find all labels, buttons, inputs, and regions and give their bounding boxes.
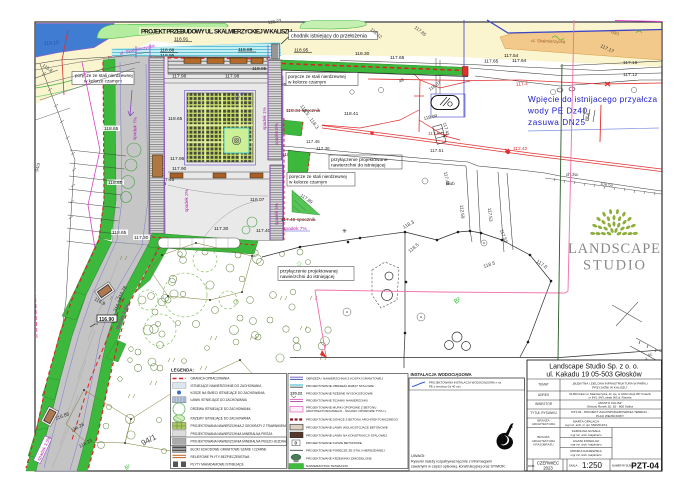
svg-text:DATA: DATA bbox=[528, 464, 535, 468]
svg-text:Rysunki należy rozpatrywać ł: Rysunki należy rozpatrywać łącznie z inf… bbox=[411, 460, 492, 464]
svg-text:PROJEKTOWANE RZĘDNE WYSOKOŚCIO: PROJEKTOWANE RZĘDNE WYSOKOŚCIOWE bbox=[306, 390, 373, 395]
svg-text:przyłączenie projektowane: przyłączenie projektowane bbox=[331, 157, 388, 163]
svg-text:spadek 6%: spadek 6% bbox=[274, 203, 279, 225]
svg-text:118.30: 118.30 bbox=[355, 51, 370, 57]
svg-text:GRANICA OPRACOWANIA: GRANICA OPRACOWANIA bbox=[191, 377, 231, 381]
svg-text:118.65: 118.65 bbox=[112, 230, 127, 236]
svg-text:ARCHITEKTURA: ARCHITEKTURA bbox=[532, 422, 555, 426]
svg-text:nawierzchni do istniejącej: nawierzchni do istniejącej bbox=[331, 163, 385, 169]
svg-text:PROJEKT PRZEBUDOWY UL. SKALMIE: PROJEKT PRZEBUDOWY UL. SKALMIERZYCKIEJ W… bbox=[141, 29, 293, 36]
svg-text:KOSZE NA ŚMIECI ISTNIEJĄCE DO: KOSZE NA ŚMIECI ISTNIEJĄCE DO ZACHOWANIA bbox=[191, 390, 266, 395]
svg-text:wody PE Dz40: wody PE Dz40 bbox=[527, 107, 587, 116]
svg-text:PRZYJAŹNI W KALISZU”: PRZYJAŹNI W KALISZU” bbox=[592, 385, 627, 390]
svg-text:spadek 1%: spadek 1% bbox=[262, 107, 267, 130]
svg-text:DRZEWA ISTNIEJĄCE DO ZACHOWANI: DRZEWA ISTNIEJĄCE DO ZACHOWANIA bbox=[191, 407, 252, 411]
svg-text:117.40: 117.40 bbox=[256, 228, 271, 234]
svg-text:PLAC WEJŚCIOWY: PLAC WEJŚCIOWY bbox=[596, 413, 624, 418]
svg-text:117.90: 117.90 bbox=[172, 166, 187, 172]
svg-text:117.96: 117.96 bbox=[170, 156, 185, 162]
svg-text:117.64: 117.64 bbox=[512, 58, 527, 64]
svg-text:BLOKI SCHODOWE GRANITOWE SZARE: BLOKI SCHODOWE GRANITOWE SZARE I CZARNE bbox=[191, 448, 267, 452]
svg-text:ŁAWKI ISTNIEJĄCE DO ZACHOWANIA: ŁAWKI ISTNIEJĄCE DO ZACHOWANIA bbox=[191, 398, 248, 402]
svg-text:ul.: ul. bbox=[648, 352, 653, 357]
svg-text:117.46: 117.46 bbox=[306, 139, 320, 144]
svg-text:PROJEKTOWANA NAWIERZCHNIA MINE: PROJEKTOWANA NAWIERZCHNIA MINERALNA PIES… bbox=[191, 440, 287, 444]
svg-text:LANDSCAPE: LANDSCAPE bbox=[568, 241, 660, 257]
svg-text:PROJEKTOWANA NAWIERZCHNIA Z GE: PROJEKTOWANA NAWIERZCHNIA Z GEOKRATY Z T… bbox=[191, 424, 287, 428]
svg-text:✳: ✳ bbox=[342, 228, 347, 235]
svg-text:mgr inż. arch. nr upr. MW/2012: mgr inż. arch. nr upr. MW/2012/12 bbox=[565, 423, 608, 427]
svg-text:INSTALACJA WODOCIĄGOWA: INSTALACJA WODOCIĄGOWA bbox=[411, 372, 472, 377]
svg-text:spadek 2%: spadek 2% bbox=[184, 189, 189, 212]
svg-text:118.95: 118.95 bbox=[252, 66, 267, 72]
svg-text:PROJEKTOWANE ŁAWKI WOLNOSTOJĄC: PROJEKTOWANE ŁAWKI WOLNOSTOJĄCE BETONOWE bbox=[306, 426, 388, 430]
svg-text:TYTUŁ RYSUNKU: TYTUŁ RYSUNKU bbox=[530, 411, 557, 415]
svg-text:1:250: 1:250 bbox=[582, 461, 603, 470]
svg-text:zawartymi w części opisowej, k: zawartymi w części opisowej, konstrukcyj… bbox=[411, 465, 506, 469]
svg-text:PROJEKTOWANE KOSZE BETONOWE: PROJEKTOWANE KOSZE BETONOWE bbox=[306, 441, 362, 445]
svg-text:2023: 2023 bbox=[543, 466, 553, 471]
svg-text:ARCHITEKTONICZNEGO - ŚCIANKI O: ARCHITEKTONICZNEGO - ŚCIANKI OPOROWE TYP… bbox=[306, 408, 387, 413]
svg-text:Główny Rynek 20, 62 - 800 Kali: Główny Rynek 20, 62 - 800 Kalisz bbox=[587, 405, 634, 409]
svg-text:PROJEKTOWANA NAWIERZCHNIA MINE: PROJEKTOWANA NAWIERZCHNIA MINERALNA PIES… bbox=[191, 432, 274, 436]
svg-text:PROJEKTOWANE PORĘCZE ZE STALI: PROJEKTOWANE PORĘCZE ZE STALI NIERDZEWNE… bbox=[306, 449, 385, 453]
svg-text:przyłączenie projektowanej: przyłączenie projektowanej bbox=[280, 268, 338, 274]
svg-text:UWAGI:: UWAGI: bbox=[411, 453, 426, 458]
svg-text:LEGENDA:: LEGENDA: bbox=[171, 368, 194, 373]
svg-text:w kolorze czarnym: w kolorze czarnym bbox=[289, 180, 327, 185]
svg-text:PROJEKTOWANE ŁAWKI NA KONSTRUK: PROJEKTOWANE ŁAWKI NA KONSTRUKCJI STALOW… bbox=[306, 433, 388, 437]
svg-text:INWESTOR: INWESTOR bbox=[535, 402, 553, 406]
svg-text:ul. Kakadu 19 05-503 Głosków: ul. Kakadu 19 05-503 Głosków bbox=[546, 372, 642, 379]
svg-text:118.65: 118.65 bbox=[108, 180, 123, 186]
svg-text:nr 94/1, 94/3, obręb 063 ul. R: nr 94/1, 94/3, obręb 063 ul. Rzeźnia bbox=[589, 396, 632, 400]
svg-text:116.90: 116.90 bbox=[99, 317, 114, 323]
svg-text:117.65: 117.65 bbox=[484, 59, 499, 65]
svg-text:62-800 Kalisz ul. Skalmierzyck: 62-800 Kalisz ul. Skalmierzycka, dz. ew.… bbox=[569, 392, 651, 396]
svg-text:PROJEKTOWANE ŚCIANKI NAWIERZCH: PROJEKTOWANE ŚCIANKI NAWIERZCHNI bbox=[306, 398, 368, 403]
svg-text:nawierzchni do istniejącej: nawierzchni do istniejącej bbox=[280, 274, 334, 280]
svg-text:117.12: 117.12 bbox=[623, 72, 638, 78]
svg-text:118.41: 118.41 bbox=[344, 111, 359, 117]
svg-text:KRZEWY ISTNIEJĄCE DO ZACHOWANI: KRZEWY ISTNIEJĄCE DO ZACHOWANIA bbox=[191, 417, 252, 421]
svg-text:PŁYTY MAKADAMOWE ISTNIEJĄCE: PŁYTY MAKADAMOWE ISTNIEJĄCE bbox=[191, 463, 244, 467]
svg-text:mgr inż. arch. krajobrazu: mgr inż. arch. krajobrazu bbox=[571, 453, 602, 457]
svg-text:117.16: 117.16 bbox=[623, 60, 638, 66]
svg-text:PROJEKTOWANE OBRZEŻA RABAT STA: PROJEKTOWANE OBRZEŻA RABAT STALOWE bbox=[306, 383, 374, 388]
svg-text:118.65: 118.65 bbox=[104, 126, 119, 132]
svg-text:mgr inż. arch. krajobrazu: mgr inż. arch. krajobrazu bbox=[571, 433, 602, 437]
svg-text:118.65: 118.65 bbox=[168, 116, 183, 122]
svg-text:dłub: dłub bbox=[446, 181, 455, 186]
svg-text:PZT-04: PZT-04 bbox=[631, 461, 659, 471]
svg-text:poręcze ze stali nierdzewnej: poręcze ze stali nierdzewnej bbox=[289, 174, 347, 179]
svg-text:zasuwa DN25: zasuwa DN25 bbox=[528, 118, 585, 127]
svg-text:117.51: 117.51 bbox=[430, 148, 444, 153]
svg-text:spadek 6%: spadek 6% bbox=[274, 123, 279, 145]
svg-text:117.65: 117.65 bbox=[390, 55, 405, 61]
svg-text:NAWIERZCHNIA TRAWIASTA: NAWIERZCHNIA TRAWIASTA bbox=[306, 464, 349, 468]
svg-text:SKALA: SKALA bbox=[569, 464, 578, 468]
svg-text:PROJEKTOWANE DONICE Z BETONU A: PROJEKTOWANE DONICE Z BETONU ARCHITEKTON… bbox=[306, 418, 399, 422]
svg-text:117.30: 117.30 bbox=[134, 235, 149, 241]
svg-text:PROJEKTOWANE KRZEWINKI ZIMOZIE: PROJEKTOWANE KRZEWINKI ZIMOZIELONE bbox=[306, 456, 372, 460]
svg-text:Landscape Studio Sp. z o. o.: Landscape Studio Sp. z o. o. bbox=[549, 364, 639, 371]
svg-text:PE o średnicy Dz 40 mm: PE o średnicy Dz 40 mm bbox=[429, 384, 461, 388]
svg-text:ADRES: ADRES bbox=[538, 393, 549, 397]
svg-text:Wpięcie do istnijacego przyałc: Wpięcie do istnijacego przyałcza bbox=[528, 95, 657, 104]
svg-text:TEMAT: TEMAT bbox=[538, 383, 549, 387]
svg-text:117.36: 117.36 bbox=[316, 146, 330, 151]
svg-text:mgr inż. arch. krajobrazu: mgr inż. arch. krajobrazu bbox=[571, 443, 602, 447]
svg-text:KRAJOBRAZU: KRAJOBRAZU bbox=[533, 443, 553, 447]
svg-text:spadek 7%: spadek 7% bbox=[132, 117, 138, 140]
svg-text:117.96: 117.96 bbox=[172, 74, 187, 80]
svg-text:w kolorze czarnym: w kolorze czarnym bbox=[84, 79, 122, 84]
svg-text:chodnik istniejący do przełoże: chodnik istniejący do przełożenia bbox=[291, 34, 367, 40]
svg-text:ISTNIEJĄCE NAWIERZCHNIE DO ZAC: ISTNIEJĄCE NAWIERZCHNIE DO ZACHOWANIA bbox=[191, 384, 263, 388]
svg-text:☆: ☆ bbox=[296, 260, 302, 268]
svg-text:117.30: 117.30 bbox=[214, 226, 229, 232]
svg-text:OBRZEŻA / NAWIERZCHNIA Z KOSTK: OBRZEŻA / NAWIERZCHNIA Z KOSTKI GRANITOW… bbox=[306, 376, 383, 381]
svg-text:w kolorze czarnym: w kolorze czarnym bbox=[288, 80, 326, 85]
svg-text:RELIEFOWE PŁYTY BEZPIECZEŃSTWA: RELIEFOWE PŁYTY BEZPIECZEŃSTWA bbox=[191, 455, 251, 459]
svg-text:112.42: 112.42 bbox=[513, 146, 528, 152]
svg-text:120.22: 120.22 bbox=[290, 391, 303, 396]
svg-text:119.10: 119.10 bbox=[44, 40, 60, 47]
svg-text:117.98: 117.98 bbox=[225, 74, 240, 80]
svg-text:ch.żw.: ch.żw. bbox=[566, 172, 579, 177]
svg-text:poręcze ze stali nierdzewnej: poręcze ze stali nierdzewnej bbox=[288, 74, 346, 79]
